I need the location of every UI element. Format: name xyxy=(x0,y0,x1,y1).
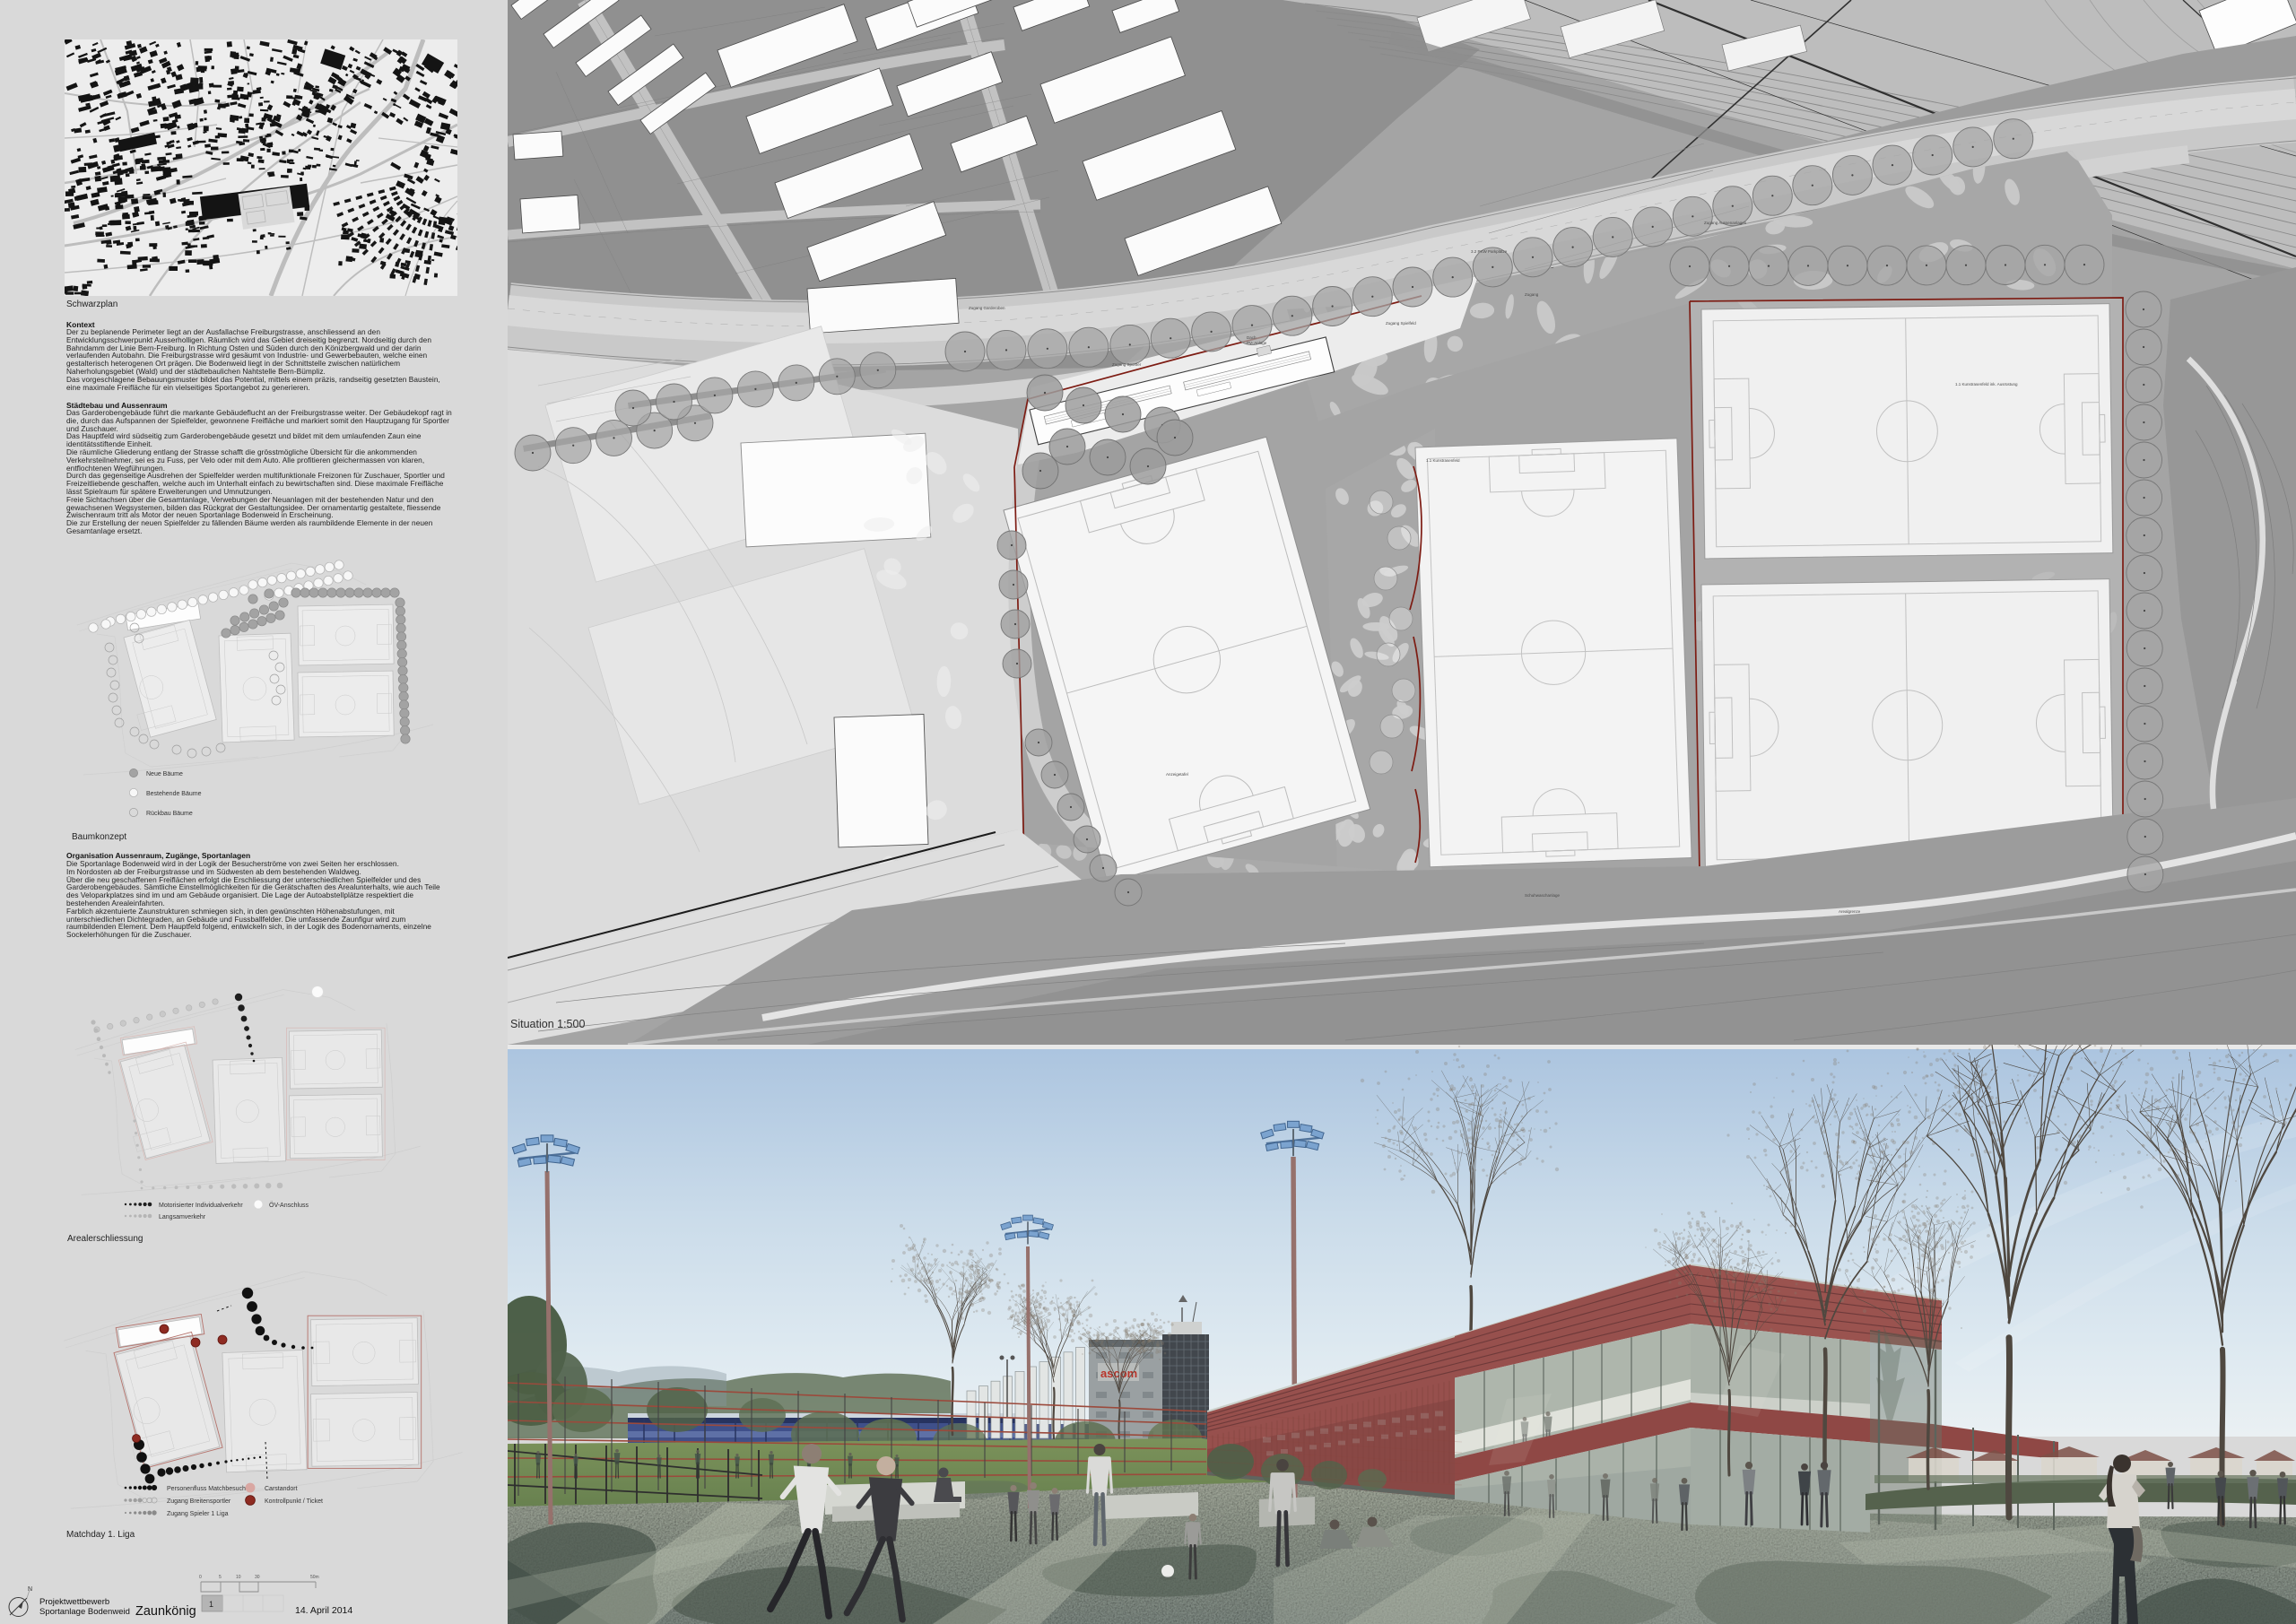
svg-text:50m: 50m xyxy=(310,1575,319,1580)
svg-text:1.1 Kunstrasenfeld ink. Ausrüs: 1.1 Kunstrasenfeld ink. Ausrüstung xyxy=(1955,382,2018,386)
svg-text:Situation 1:500: Situation 1:500 xyxy=(510,1018,585,1030)
svg-text:Arealgrenze: Arealgrenze xyxy=(1839,909,1861,914)
svg-text:Zugang: Zugang xyxy=(1525,292,1539,297)
svg-text:Langsamverkehr: Langsamverkehr xyxy=(159,1214,206,1220)
svg-text:Rückbau Bäume: Rückbau Bäume xyxy=(146,811,193,817)
svg-text:N: N xyxy=(28,1586,32,1593)
svg-text:Bestehende Bäume: Bestehende Bäume xyxy=(146,791,202,797)
svg-text:Zugang Sportler: Zugang Sportler xyxy=(1112,362,1142,367)
svg-text:Zugang Spielfeld: Zugang Spielfeld xyxy=(1386,321,1416,326)
svg-text:10: 10 xyxy=(236,1575,241,1580)
svg-text:Zugang Aussenanlagen: Zugang Aussenanlagen xyxy=(1704,221,1747,225)
svg-text:Anzeigetafel: Anzeigetafel xyxy=(1166,772,1188,777)
svg-text:5: 5 xyxy=(219,1575,222,1580)
svg-text:Kontrollpunkt / Ticket: Kontrollpunkt / Ticket xyxy=(265,1498,323,1505)
svg-text:Schuhwaschanlage: Schuhwaschanlage xyxy=(1525,893,1561,898)
svg-text:Neue Bäume: Neue Bäume xyxy=(146,771,183,777)
svg-text:Personenfluss Matchbesucher: Personenfluss Matchbesucher xyxy=(167,1486,252,1492)
svg-text:1: 1 xyxy=(209,1600,213,1609)
svg-text:Zaunkönig: Zaunkönig xyxy=(135,1604,196,1619)
svg-text:Carstandort: Carstandort xyxy=(265,1486,298,1492)
svg-text:Motorisierter Individualverkeh: Motorisierter Individualverkehr xyxy=(159,1203,243,1209)
svg-text:Projektwettbewerb: Projektwettbewerb xyxy=(39,1597,109,1607)
svg-text:Sportanlage Bodenweid: Sportanlage Bodenweid xyxy=(39,1607,130,1617)
svg-text:ÖV-Anschluss: ÖV-Anschluss xyxy=(269,1202,309,1209)
svg-text:1.1 Kunstrasenfeld: 1.1 Kunstrasenfeld xyxy=(1426,458,1460,463)
svg-text:Zugang Breitensportler: Zugang Breitensportler xyxy=(167,1498,231,1505)
svg-text:30: 30 xyxy=(255,1575,260,1580)
svg-text:Dach: Dach xyxy=(1247,335,1257,340)
svg-text:PV- Anlage: PV- Anlage xyxy=(1247,341,1267,345)
svg-text:14. April 2014: 14. April 2014 xyxy=(295,1605,352,1616)
svg-text:Zugang Spieler 1 Liga: Zugang Spieler 1 Liga xyxy=(167,1511,229,1517)
svg-text:0: 0 xyxy=(199,1575,202,1580)
svg-text:3.2 PKW Parkplätze: 3.2 PKW Parkplätze xyxy=(1471,249,1508,254)
svg-text:Zugang Garderoben: Zugang Garderoben xyxy=(969,306,1005,310)
